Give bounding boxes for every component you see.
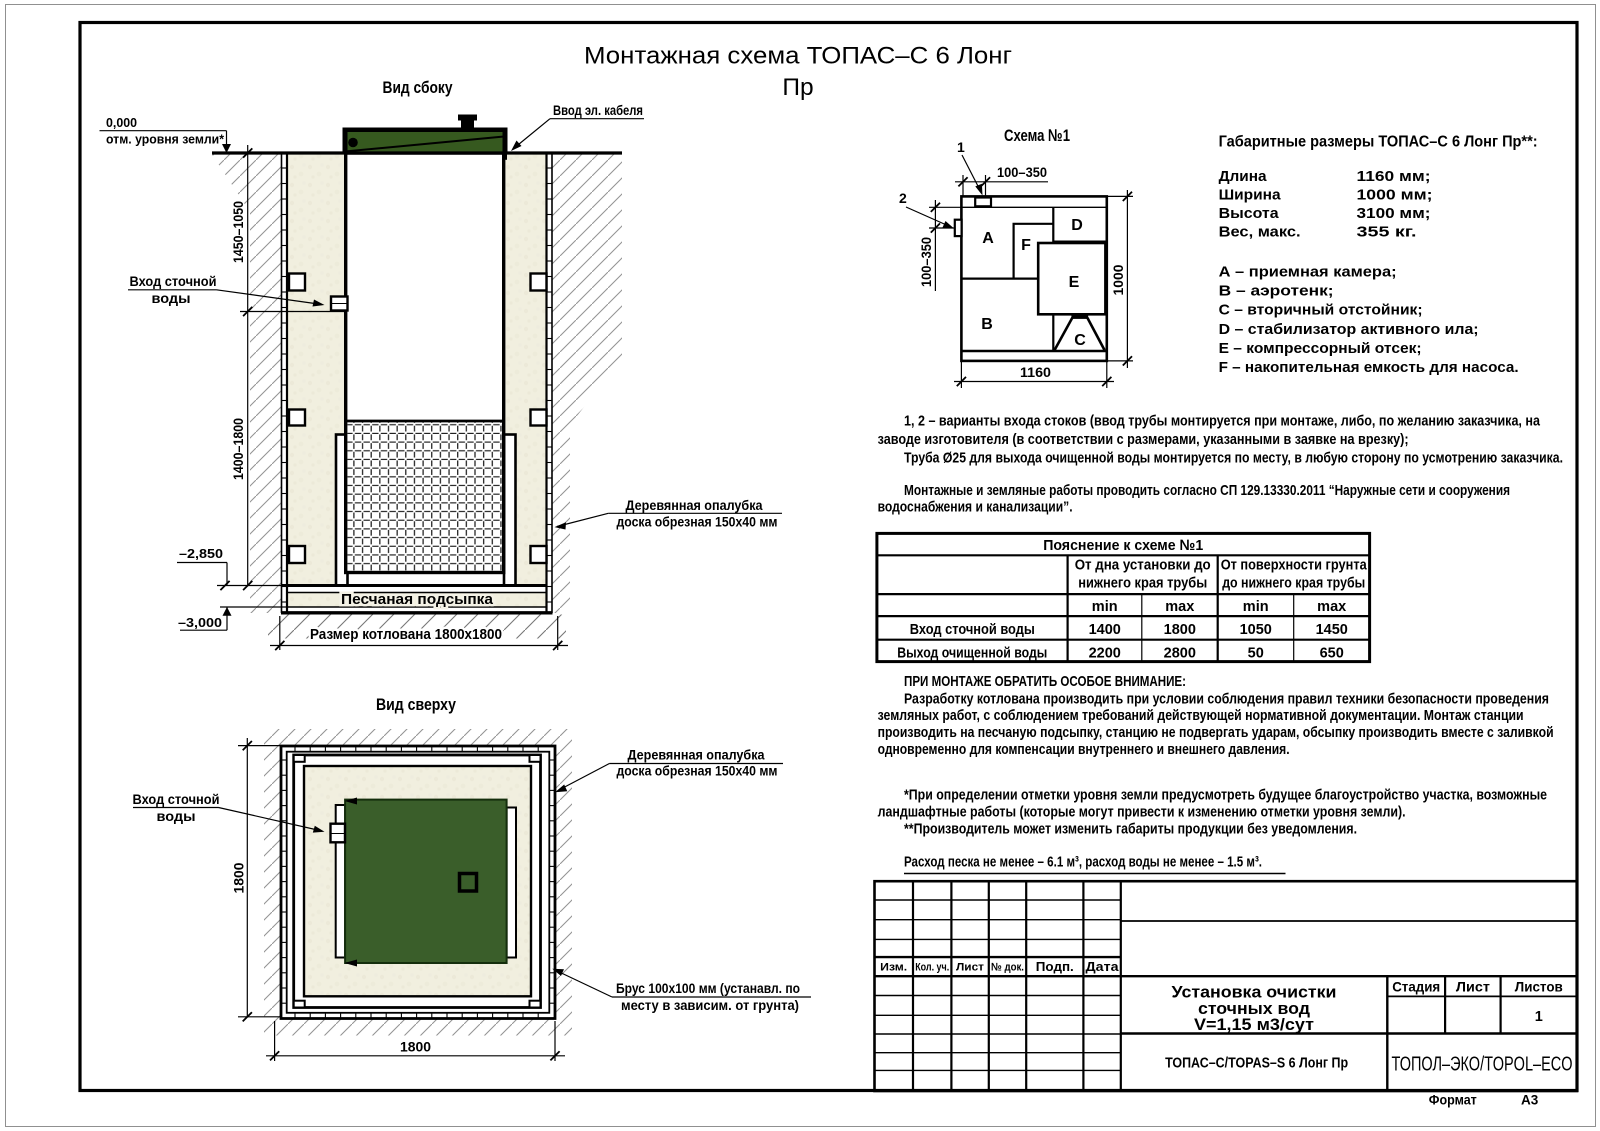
svg-text:земляных работ, с соблюдением: земляных работ, с соблюдением требований…	[878, 707, 1524, 724]
svg-text:D – стабилизатор активного ила: D – стабилизатор активного ила;	[1219, 321, 1479, 338]
svg-text:доска обрезная 150х40 мм: доска обрезная 150х40 мм	[617, 515, 778, 530]
svg-text:Брус 100х100 мм (устанавл. по: Брус 100х100 мм (устанавл. по	[616, 981, 800, 996]
svg-text:**Производитель может изменить: **Производитель может изменить габариты …	[904, 820, 1357, 837]
svg-text:1450–1050: 1450–1050	[231, 201, 246, 263]
svg-text:max: max	[1165, 599, 1194, 615]
svg-text:ТОПОЛ–ЭКО/TOPOL–ECO: ТОПОЛ–ЭКО/TOPOL–ECO	[1392, 1053, 1573, 1076]
svg-text:месту в зависим. от грунта): месту в зависим. от грунта)	[621, 998, 799, 1013]
svg-text:Вес, макс.: Вес, макс.	[1219, 224, 1301, 241]
svg-text:С – вторичный отстойник;: С – вторичный отстойник;	[1219, 302, 1423, 319]
svg-text:Вход сточной: Вход сточной	[130, 274, 217, 289]
svg-text:2: 2	[899, 190, 907, 206]
svg-text:В – аэротенк;: В – аэротенк;	[1219, 283, 1334, 300]
svg-text:1450: 1450	[1316, 622, 1348, 638]
svg-text:Вид сбоку: Вид сбоку	[383, 78, 453, 97]
svg-text:E: E	[1069, 274, 1080, 291]
svg-text:производить на песчаную подсып: производить на песчаную подсыпку, станци…	[878, 724, 1554, 741]
svg-text:1160: 1160	[1020, 365, 1051, 380]
svg-text:–2,850: –2,850	[179, 546, 223, 561]
svg-text:Изм.: Изм.	[880, 962, 907, 974]
svg-text:Кол. уч.: Кол. уч.	[915, 962, 949, 974]
svg-text:заводе изготовителя (в соответ: заводе изготовителя (в соответствии с ра…	[878, 431, 1409, 448]
svg-text:Труба Ø25 для выхода очищенной: Труба Ø25 для выхода очищенной воды монт…	[904, 450, 1563, 467]
svg-text:C: C	[1074, 332, 1086, 349]
svg-text:Расход песка не менее – 6.1 м³: Расход песка не менее – 6.1 м³, расход в…	[904, 854, 1262, 871]
svg-text:Вход сточной воды: Вход сточной воды	[910, 622, 1035, 638]
svg-text:доска обрезная 150х40 мм: доска обрезная 150х40 мм	[617, 764, 778, 779]
svg-text:Длина: Длина	[1219, 168, 1268, 185]
svg-text:1800: 1800	[400, 1040, 431, 1055]
svg-text:Высота: Высота	[1219, 205, 1280, 222]
svg-text:1000: 1000	[1111, 265, 1126, 296]
svg-text:Монтажные и земляные работы пр: Монтажные и земляные работы проводить со…	[904, 482, 1510, 499]
svg-text:100–350: 100–350	[919, 237, 934, 287]
svg-text:Лист: Лист	[956, 962, 985, 974]
svg-text:B: B	[981, 316, 993, 333]
svg-text:Вход сточной: Вход сточной	[133, 792, 220, 807]
svg-text:Ввод эл. кабеля: Ввод эл. кабеля	[553, 103, 643, 118]
svg-text:1160 мм;: 1160 мм;	[1357, 168, 1431, 185]
svg-text:№ док.: № док.	[991, 962, 1024, 974]
svg-text:A: A	[982, 230, 994, 247]
svg-text:F: F	[1021, 237, 1031, 254]
svg-text:Монтажная схема ТОПАС–С 6 Лонг: Монтажная схема ТОПАС–С 6 Лонг	[584, 43, 1012, 70]
svg-text:Стадия: Стадия	[1392, 980, 1440, 995]
svg-text:*При определении отметки уровн: *При определении отметки уровня земли пр…	[904, 787, 1547, 804]
svg-text:min: min	[1092, 599, 1118, 615]
svg-text:Габаритные размеры ТОПАС–С 6 Л: Габаритные размеры ТОПАС–С 6 Лонг Пр**:	[1219, 134, 1538, 151]
svg-text:2200: 2200	[1089, 645, 1121, 661]
svg-text:Вид сверху: Вид сверху	[376, 695, 456, 714]
svg-text:1: 1	[1535, 1009, 1543, 1025]
svg-text:1: 1	[957, 139, 965, 155]
svg-text:D: D	[1071, 217, 1083, 234]
svg-text:водоснабжения и канализации”.: водоснабжения и канализации”.	[878, 499, 1073, 516]
svg-text:ПРИ МОНТАЖЕ ОБРАТИТЬ ОСОБОЕ ВН: ПРИ МОНТАЖЕ ОБРАТИТЬ ОСОБОЕ ВНИМАНИЕ:	[904, 673, 1186, 690]
svg-text:Разработку котлована производи: Разработку котлована производить при усл…	[904, 690, 1549, 707]
svg-text:воды: воды	[157, 809, 196, 824]
svg-text:1, 2 – варианты входа стоков: 1, 2 – варианты входа стоков (ввод трубы…	[904, 413, 1541, 430]
svg-text:Листов: Листов	[1515, 980, 1563, 995]
svg-text:Схема №1: Схема №1	[1004, 126, 1070, 145]
svg-text:воды: воды	[152, 291, 191, 306]
svg-text:1400–1800: 1400–1800	[231, 418, 246, 480]
svg-text:1800: 1800	[1164, 622, 1196, 638]
svg-text:1400: 1400	[1089, 622, 1121, 638]
svg-text:Подп.: Подп.	[1036, 960, 1074, 974]
svg-text:нижнего края трубы: нижнего края трубы	[1078, 576, 1207, 592]
svg-text:3100 мм;: 3100 мм;	[1357, 205, 1431, 222]
svg-text:1000 мм;: 1000 мм;	[1357, 187, 1433, 204]
svg-text:Деревянная опалубка: Деревянная опалубка	[626, 498, 763, 513]
svg-text:100–350: 100–350	[997, 165, 1047, 180]
svg-text:Размер котлована 1800х1800: Размер котлована 1800х1800	[310, 626, 502, 643]
svg-text:Ширина: Ширина	[1219, 187, 1282, 204]
svg-text:ландшафтные работы (которые мо: ландшафтные работы (которые могут привес…	[878, 804, 1406, 821]
svg-text:1050: 1050	[1240, 622, 1272, 638]
svg-text:V=1,15 м3/сут: V=1,15 м3/сут	[1194, 1016, 1314, 1034]
svg-text:2800: 2800	[1164, 645, 1196, 661]
svg-text:max: max	[1317, 599, 1346, 615]
svg-text:min: min	[1243, 599, 1269, 615]
svg-text:А3: А3	[1521, 1092, 1539, 1107]
svg-text:до нижнего края трубы: до нижнего края трубы	[1222, 576, 1365, 592]
svg-text:50: 50	[1248, 645, 1264, 661]
svg-text:Пояснение к схеме №1: Пояснение к схеме №1	[1043, 537, 1203, 554]
svg-text:Выход очищенной воды: Выход очищенной воды	[897, 645, 1047, 661]
svg-text:F – накопительная емкость для: F – накопительная емкость для насоса.	[1219, 359, 1519, 376]
svg-text:От поверхности грунта: От поверхности грунта	[1221, 558, 1368, 574]
svg-text:E – компрессорный отсек;: E – компрессорный отсек;	[1219, 340, 1422, 357]
svg-text:Дата: Дата	[1086, 960, 1120, 974]
svg-text:355 кг.: 355 кг.	[1357, 224, 1417, 241]
svg-text:ТОПАС–С/TOPAS–S 6 Лонг Пр: ТОПАС–С/TOPAS–S 6 Лонг Пр	[1165, 1056, 1348, 1072]
svg-text:От дна установки до: От дна установки до	[1075, 558, 1211, 574]
svg-text:Песчаная подсыпка: Песчаная подсыпка	[341, 592, 494, 608]
svg-text:Лист: Лист	[1456, 980, 1490, 995]
svg-text:650: 650	[1320, 645, 1344, 661]
svg-text:1800: 1800	[232, 863, 247, 894]
svg-text:Установка очистки: Установка очистки	[1172, 984, 1337, 1002]
svg-text:–3,000: –3,000	[178, 615, 222, 630]
svg-text:отм. уровня земли*: отм. уровня земли*	[106, 133, 224, 147]
svg-text:А – приемная камера;: А – приемная камера;	[1219, 264, 1397, 281]
svg-text:0,000: 0,000	[106, 115, 137, 130]
svg-text:Формат: Формат	[1429, 1092, 1477, 1107]
svg-text:одновременно для компенсации в: одновременно для компенсации внутреннего…	[878, 741, 1290, 758]
svg-text:Пр: Пр	[782, 74, 813, 101]
svg-text:Деревянная опалубка: Деревянная опалубка	[628, 748, 765, 763]
